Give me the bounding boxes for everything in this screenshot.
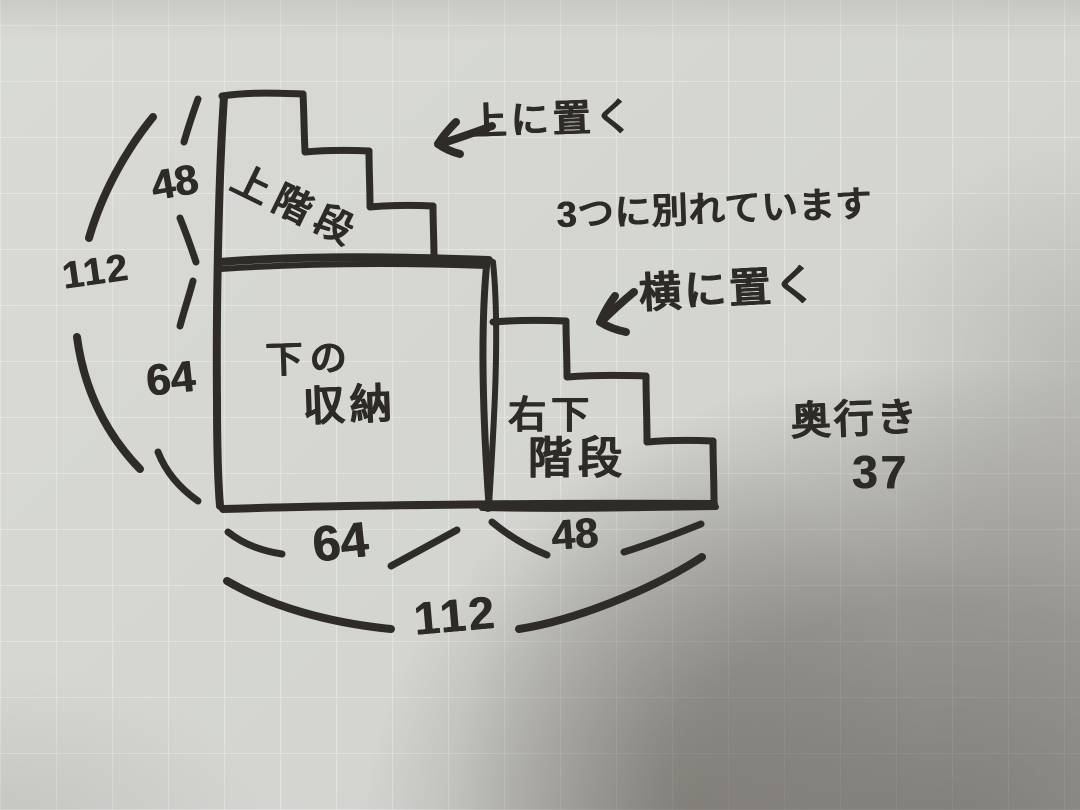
photo-of-sketch: 上階段 下の 収納 右下 階段 上に置く 3つに別れています 横に置く 奥行き … (0, 0, 1080, 810)
tick-bottom-48-right (624, 524, 701, 552)
ink-dot (456, 260, 464, 268)
bracket-bottom-112-left (227, 581, 391, 629)
upper-stairs-step2-v (369, 151, 370, 206)
right-stairs-step1-v (566, 321, 567, 376)
dim-bottom-64: 64 (310, 514, 371, 570)
right-stairs-step2-h (567, 375, 646, 377)
dim-left-112: 112 (60, 249, 132, 296)
dim-left-64: 64 (144, 355, 197, 404)
right-stairs-step1-h (493, 320, 566, 322)
dim-left-48: 48 (148, 158, 201, 207)
note-depth-label: 奥行き (790, 397, 920, 441)
upper-stairs-step3-v (433, 206, 434, 258)
arrow-head-b (600, 322, 626, 332)
figure-bottom-line-b (482, 507, 716, 509)
bracket-left-112-upper (89, 117, 153, 238)
ink-dot (483, 502, 493, 512)
note-depth-value: 37 (852, 449, 909, 495)
tick-left-48-top (184, 99, 198, 142)
storage-right-divider-b (489, 262, 496, 505)
tick-bottom-64-left (228, 532, 282, 554)
storage-top-line-b (221, 264, 487, 269)
label-lower-storage-line2: 収納 (302, 383, 397, 428)
right-stairs-step2-v (646, 376, 647, 441)
right-stairs-step3-v (713, 441, 714, 502)
upper-stairs-step2-h (370, 205, 433, 207)
tick-left-64-bottom (158, 452, 198, 501)
storage-right-divider-a (483, 261, 489, 505)
dim-bottom-48: 48 (550, 512, 600, 557)
note-place-on-top: 上に置く (468, 98, 637, 142)
upper-stairs-step1-h (305, 150, 369, 152)
upper-stairs-outline (217, 93, 434, 506)
label-right-stairs-line2: 階段 (528, 437, 628, 481)
label-lower-storage-line1: 下の (265, 339, 354, 379)
upper-stairs-top (222, 93, 303, 96)
tick-bottom-64-right (391, 530, 457, 566)
tick-left-48-bottom (180, 218, 196, 262)
bracket-left-112-lower (77, 337, 140, 469)
bracket-bottom-112-right (519, 557, 702, 629)
dim-bottom-112: 112 (412, 589, 499, 642)
left-arrow-icon-side (600, 292, 634, 332)
tick-bottom-48-left (492, 522, 547, 555)
tick-left-64-top (180, 281, 193, 326)
label-right-stairs-line1: 右下 (508, 397, 594, 435)
upper-stairs-step1-v (303, 94, 305, 151)
arrow-head-b (438, 144, 460, 154)
figure-left-edge (217, 97, 224, 506)
note-place-beside: 横に置く (638, 264, 820, 315)
right-stairs-step3-h (647, 440, 713, 442)
